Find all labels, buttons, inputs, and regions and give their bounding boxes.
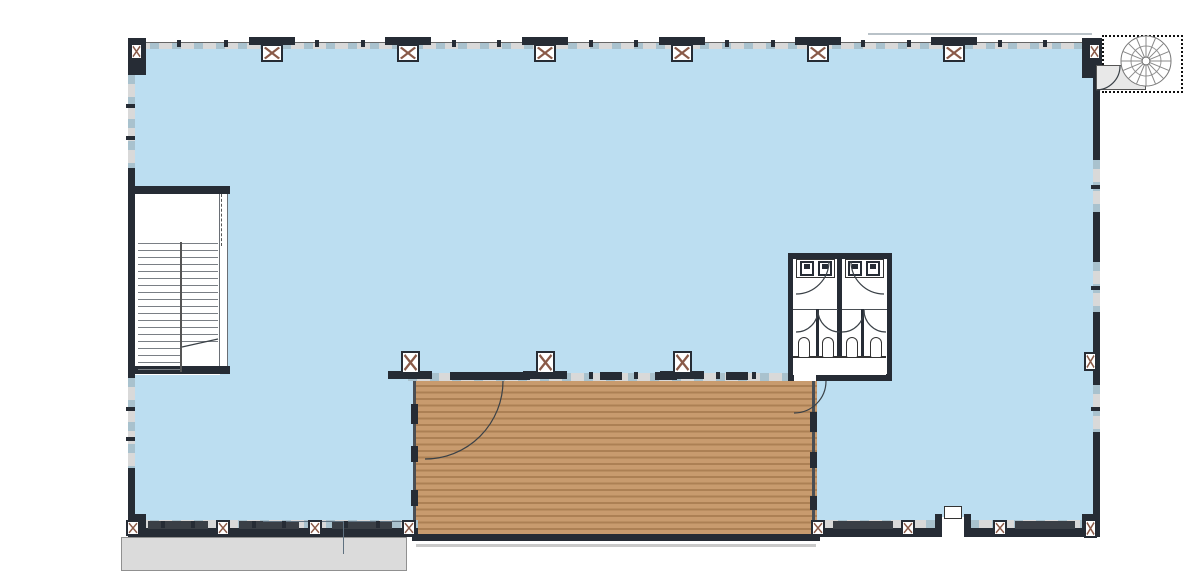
column-marker	[126, 520, 140, 536]
sink-basin	[870, 264, 876, 269]
toilet-icon	[870, 337, 882, 358]
stair-tread	[138, 334, 180, 335]
bottom-wall	[128, 528, 418, 537]
mullion-tick	[177, 40, 181, 47]
wall-spandrel	[148, 521, 208, 529]
mullion-tick	[191, 521, 195, 528]
stair-tread	[182, 271, 218, 272]
mullion-tick	[126, 136, 135, 140]
stair-tread	[138, 369, 180, 370]
column-marker	[943, 44, 965, 62]
stair-tread	[138, 355, 180, 356]
left-window-band	[128, 378, 135, 468]
deck-wall-segment	[411, 446, 418, 462]
mullion-tick	[224, 40, 228, 47]
sink-basin	[852, 264, 858, 269]
column-x-icon	[399, 46, 417, 60]
floor-plan	[0, 0, 1200, 588]
column-x-icon	[403, 353, 418, 372]
mullion-tick	[282, 521, 286, 528]
toilet-icon	[846, 337, 858, 358]
stair-tread	[182, 334, 218, 335]
mullion-tick	[252, 521, 256, 528]
restroom-right-wall	[887, 253, 892, 381]
column-marker	[993, 520, 1007, 536]
toilet-icon	[822, 337, 834, 358]
mullion-tick	[589, 40, 593, 47]
entrance-canopy	[121, 537, 407, 571]
column-marker	[308, 520, 322, 536]
mullion-tick	[315, 40, 319, 47]
column-x-icon	[809, 46, 827, 60]
spiral-landing	[1096, 65, 1146, 90]
stair-tread	[182, 320, 218, 321]
stair-tread	[182, 313, 218, 314]
deck-wall-segment	[450, 372, 530, 380]
roof-overhang-line	[868, 33, 1092, 35]
mullion-tick	[1091, 185, 1100, 189]
mullion-tick	[497, 40, 501, 47]
mullion-tick	[1091, 407, 1100, 411]
mullion-tick	[126, 437, 135, 441]
stair-tread	[182, 264, 218, 265]
stair-tread	[138, 362, 180, 363]
column-x-icon	[263, 46, 281, 60]
mullion-tick	[126, 104, 135, 108]
column-x-icon	[903, 522, 913, 534]
deck-wall-segment	[810, 496, 817, 510]
deck-bottom-wall	[412, 534, 820, 541]
stair-top-wall	[131, 186, 230, 194]
mullion-tick	[634, 372, 638, 379]
column-x-icon	[310, 522, 320, 534]
exterior-door-leaf	[944, 506, 962, 519]
wood-deck	[415, 374, 817, 541]
deck-wall-segment	[810, 452, 817, 468]
mullion-tick	[725, 40, 729, 47]
column-marker	[397, 44, 419, 62]
column-marker	[1084, 352, 1097, 371]
mullion-tick	[361, 40, 365, 47]
column-marker	[536, 351, 555, 374]
column-x-icon	[128, 522, 138, 534]
mullion-tick	[634, 40, 638, 47]
wall-spandrel	[833, 521, 893, 529]
mullion-tick	[752, 372, 756, 379]
stair-tread	[138, 306, 180, 307]
column-marker	[402, 520, 416, 536]
door-jamb	[935, 514, 942, 537]
column-marker	[673, 351, 692, 374]
stair-center-divider	[180, 242, 182, 372]
column-marker	[901, 520, 915, 536]
column-marker	[1084, 519, 1097, 538]
stair-dashed-line	[221, 194, 223, 246]
mullion-tick	[1091, 286, 1100, 290]
column-x-icon	[1086, 521, 1095, 536]
stair-tread	[138, 250, 180, 251]
stall-partition	[861, 309, 864, 356]
sink-basin	[822, 264, 828, 269]
column-x-icon	[538, 353, 553, 372]
wall-spandrel	[332, 521, 392, 529]
mullion-tick	[376, 521, 380, 528]
stair-tread	[138, 313, 180, 314]
column-x-icon	[675, 353, 690, 372]
deck-wall-segment	[600, 372, 622, 380]
column-x-icon	[813, 522, 823, 534]
deck-wall-segment	[726, 372, 748, 380]
stair-tread	[182, 292, 218, 293]
column-marker	[534, 44, 556, 62]
restroom-door-opening	[794, 374, 816, 381]
stair-tread	[138, 299, 180, 300]
restroom-mid-line	[842, 309, 887, 310]
mullion-tick	[452, 40, 456, 47]
stair-tread	[138, 285, 180, 286]
column-x-icon	[536, 46, 554, 60]
column-x-icon	[132, 45, 141, 58]
mullion-tick	[1043, 40, 1047, 47]
stair-tread	[138, 320, 180, 321]
deck-wall-segment	[411, 404, 418, 424]
left-window-band	[128, 75, 135, 168]
column-marker	[130, 43, 143, 60]
stair-tread	[182, 250, 218, 251]
mullion-tick	[861, 40, 865, 47]
column-marker	[261, 44, 283, 62]
column-x-icon	[1086, 354, 1095, 369]
exterior-door-opening	[941, 517, 965, 537]
stair-tread	[138, 264, 180, 265]
mullion-tick	[453, 372, 457, 379]
stair-tread	[182, 341, 218, 342]
mullion-tick	[589, 372, 593, 379]
door-jamb	[964, 514, 971, 537]
stair-tread	[138, 292, 180, 293]
wall-spandrel	[239, 521, 299, 529]
sink-basin	[804, 264, 810, 269]
stair-tread	[182, 257, 218, 258]
stair-tread	[182, 327, 218, 328]
plumbing-chase	[793, 356, 886, 375]
stair-tread	[182, 278, 218, 279]
stair-tread	[138, 271, 180, 272]
stall-partition	[816, 309, 819, 356]
column-x-icon	[218, 522, 228, 534]
stair-tread	[182, 299, 218, 300]
toilet-icon	[798, 337, 810, 358]
column-marker	[807, 44, 829, 62]
deck-wall-segment	[411, 490, 418, 506]
column-marker	[216, 520, 230, 536]
column-x-icon	[1090, 45, 1099, 58]
mullion-tick	[907, 40, 911, 47]
column-marker	[811, 520, 825, 536]
column-x-icon	[945, 46, 963, 60]
stair-tread	[182, 243, 218, 244]
mullion-tick	[771, 40, 775, 47]
mullion-tick	[126, 407, 135, 411]
stair-tread	[138, 341, 180, 342]
wall-spandrel	[1015, 521, 1075, 529]
deck-wall-segment	[810, 412, 817, 432]
deck-shadow-line	[416, 544, 816, 547]
stair-tread	[138, 348, 180, 349]
mullion-tick	[716, 372, 720, 379]
column-marker	[401, 351, 420, 374]
stair-tread	[182, 306, 218, 307]
stair-tread	[138, 327, 180, 328]
stair-tread	[138, 257, 180, 258]
stair-tread	[182, 285, 218, 286]
column-marker	[671, 44, 693, 62]
column-marker	[1088, 43, 1101, 60]
stair-tread	[138, 243, 180, 244]
mullion-tick	[498, 372, 502, 379]
mullion-tick	[344, 521, 348, 528]
column-x-icon	[673, 46, 691, 60]
column-x-icon	[404, 522, 414, 534]
column-x-icon	[995, 522, 1005, 534]
mullion-tick	[998, 40, 1002, 47]
mullion-tick	[161, 521, 165, 528]
stair-tread	[138, 278, 180, 279]
